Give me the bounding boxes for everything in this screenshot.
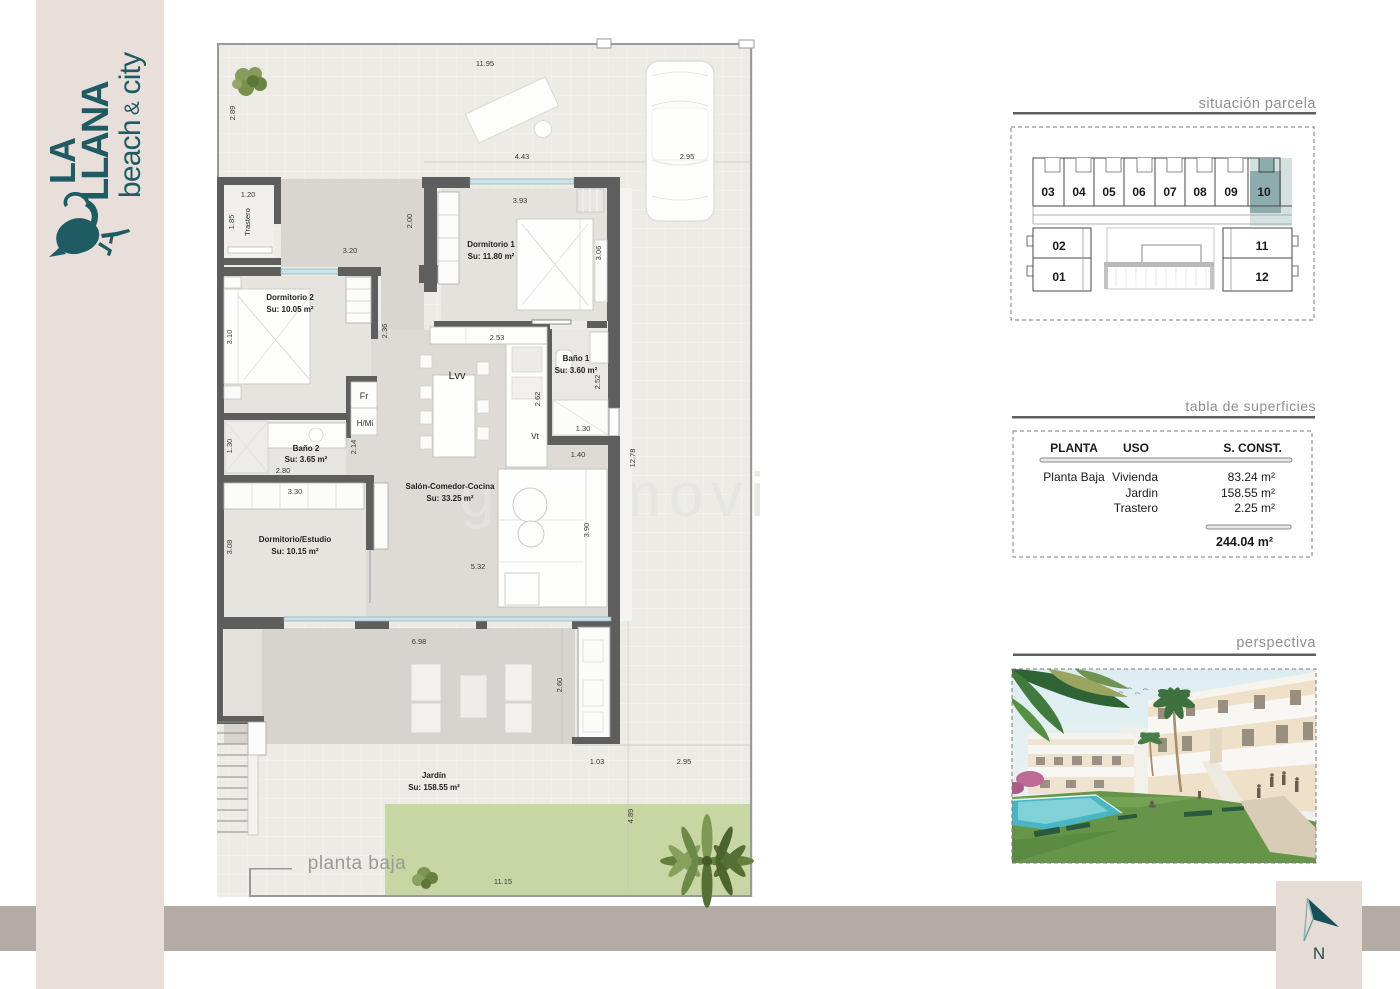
- svg-text:2.95: 2.95: [677, 757, 692, 766]
- svg-text:Su: 11.80 m²: Su: 11.80 m²: [468, 252, 515, 261]
- svg-text:situación parcela: situación parcela: [1199, 96, 1317, 112]
- svg-text:2.52: 2.52: [593, 375, 602, 390]
- svg-text:Su: 10.05 m²: Su: 10.05 m²: [266, 305, 313, 314]
- svg-text:02: 02: [1052, 239, 1066, 253]
- svg-text:Su: 33.25 m²: Su: 33.25 m²: [426, 494, 473, 503]
- svg-text:LA: LA: [42, 137, 83, 184]
- svg-text:1.40: 1.40: [571, 450, 586, 459]
- svg-text:Baño 1: Baño 1: [563, 354, 590, 363]
- svg-text:2.53: 2.53: [490, 333, 505, 342]
- svg-text:Su: 3.65 m²: Su: 3.65 m²: [285, 455, 328, 464]
- svg-text:Fr: Fr: [360, 391, 369, 401]
- svg-text:Trastero: Trastero: [1114, 501, 1159, 515]
- svg-text:2.95: 2.95: [680, 152, 695, 161]
- svg-text:6.98: 6.98: [412, 637, 427, 646]
- svg-text:H/Mi: H/Mi: [357, 419, 374, 428]
- svg-text:N: N: [1313, 944, 1325, 963]
- svg-text:83.24 m²: 83.24 m²: [1228, 470, 1275, 484]
- svg-text:Salón-Comedor-Cocina: Salón-Comedor-Cocina: [406, 482, 495, 491]
- svg-text:3.08: 3.08: [225, 540, 234, 555]
- svg-text:3.93: 3.93: [513, 196, 528, 205]
- svg-text:05: 05: [1102, 185, 1116, 199]
- svg-text:12: 12: [1255, 270, 1269, 284]
- svg-text:1.03: 1.03: [590, 757, 605, 766]
- svg-text:244.04 m²: 244.04 m²: [1216, 535, 1273, 549]
- svg-text:Vt: Vt: [531, 432, 539, 441]
- svg-text:1.85: 1.85: [227, 215, 236, 230]
- svg-text:Su: 158.55 m²: Su: 158.55 m²: [408, 783, 460, 792]
- svg-text:Lvv: Lvv: [448, 370, 466, 382]
- svg-text:USO: USO: [1123, 441, 1149, 455]
- svg-text:5.32: 5.32: [471, 562, 486, 571]
- svg-text:perspectiva: perspectiva: [1236, 635, 1316, 651]
- svg-text:Su: 10.15 m²: Su: 10.15 m²: [271, 547, 318, 556]
- svg-text:07: 07: [1163, 185, 1177, 199]
- svg-text:1.30: 1.30: [576, 424, 591, 433]
- svg-text:Trastero: Trastero: [243, 208, 252, 236]
- svg-text:11.15: 11.15: [494, 877, 512, 886]
- svg-text:11: 11: [1256, 239, 1269, 253]
- svg-text:2.60: 2.60: [555, 678, 564, 693]
- svg-text:3.20: 3.20: [343, 246, 358, 255]
- svg-text:PLANTA: PLANTA: [1050, 441, 1098, 455]
- svg-text:Dormitorio 1: Dormitorio 1: [467, 240, 515, 249]
- svg-text:Jardin: Jardin: [1125, 486, 1158, 500]
- svg-text:Baño 2: Baño 2: [293, 444, 320, 453]
- svg-text:1.20: 1.20: [241, 190, 256, 199]
- svg-text:4.43: 4.43: [515, 152, 530, 161]
- svg-text:2.00: 2.00: [405, 214, 414, 229]
- svg-text:2.62: 2.62: [533, 392, 542, 407]
- svg-text:Vivienda: Vivienda: [1112, 470, 1158, 484]
- svg-text:11.95: 11.95: [476, 59, 494, 68]
- svg-text:04: 04: [1072, 185, 1086, 199]
- svg-text:3.06: 3.06: [594, 246, 603, 261]
- svg-text:2.89: 2.89: [228, 106, 237, 121]
- svg-text:Jardín: Jardín: [422, 771, 446, 780]
- svg-text:Su: 3.60 m²: Su: 3.60 m²: [555, 366, 598, 375]
- svg-text:03: 03: [1041, 185, 1055, 199]
- svg-text:2.25 m²: 2.25 m²: [1234, 501, 1275, 515]
- svg-text:tabla de superficies: tabla de superficies: [1185, 398, 1316, 414]
- svg-text:Dormitorio 2: Dormitorio 2: [266, 293, 314, 302]
- svg-text:01: 01: [1052, 270, 1066, 284]
- svg-text:3.30: 3.30: [288, 487, 303, 496]
- svg-text:4.89: 4.89: [626, 809, 635, 824]
- svg-text:1.30: 1.30: [225, 439, 234, 454]
- svg-text:Dormitorio/Estudio: Dormitorio/Estudio: [259, 535, 332, 544]
- svg-text:158.55 m²: 158.55 m²: [1221, 486, 1275, 500]
- svg-text:08: 08: [1193, 185, 1207, 199]
- svg-text:3.10: 3.10: [225, 330, 234, 345]
- svg-text:2.80: 2.80: [276, 466, 291, 475]
- svg-text:10: 10: [1257, 185, 1271, 199]
- svg-text:Planta Baja: Planta Baja: [1043, 470, 1105, 484]
- svg-text:2.14: 2.14: [349, 440, 358, 455]
- svg-text:12.78: 12.78: [628, 449, 637, 468]
- svg-text:3.90: 3.90: [582, 523, 591, 538]
- svg-text:S. CONST.: S. CONST.: [1223, 441, 1282, 455]
- svg-text:2.36: 2.36: [380, 324, 389, 339]
- svg-text:beach & city: beach & city: [114, 52, 147, 198]
- svg-text:09: 09: [1224, 185, 1238, 199]
- svg-text:planta baja: planta baja: [308, 853, 406, 874]
- svg-text:06: 06: [1132, 185, 1146, 199]
